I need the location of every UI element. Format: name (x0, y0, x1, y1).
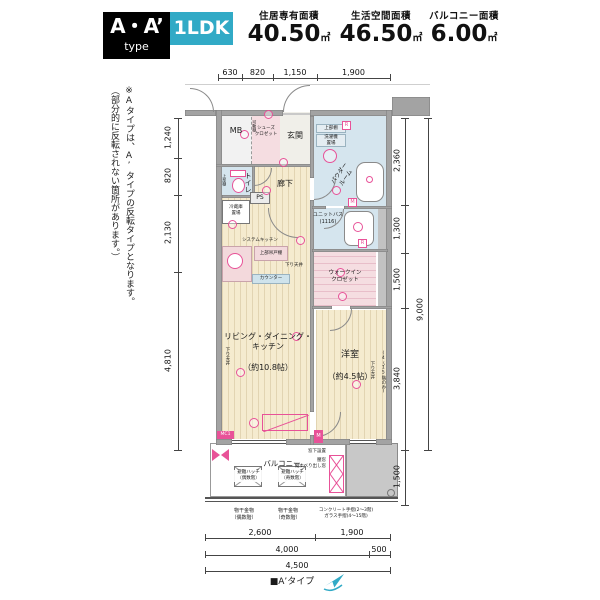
wall (312, 249, 388, 252)
dim-bottom1-1: 1,900 (322, 528, 382, 537)
casement-window (329, 455, 344, 493)
pipe-shaft (378, 208, 386, 306)
under-window-note: 窓下設置 (296, 449, 326, 455)
marker-r: R (358, 239, 367, 248)
dim-top-1: 820 (243, 68, 272, 77)
corridor-door-arc (190, 88, 214, 112)
dim-tick (390, 534, 391, 541)
marker-mc1: MC1 (217, 431, 234, 439)
wall (216, 164, 312, 167)
balcony-railing (205, 497, 398, 502)
dim-line-left (178, 118, 179, 450)
dim-tick (174, 158, 182, 159)
dim-tick (205, 551, 206, 558)
dim-tick (174, 118, 182, 119)
note-line2: （部分的に反転されない箇所があります。） (106, 86, 121, 366)
dim-bottom2-0: 4,000 (257, 545, 317, 554)
dim-line-bottom1 (205, 538, 390, 539)
stat-unit: ㎡ (320, 33, 330, 44)
bedroom-window (350, 440, 376, 444)
dim-tick (424, 118, 432, 119)
type-sub: type (103, 40, 170, 53)
dim-bottom-total: 4,500 (267, 561, 327, 570)
hatch-even-label: 避難ハッチ （偶数階） (233, 470, 264, 482)
dim-line-top (218, 78, 390, 79)
bath-drain-icon (353, 222, 363, 232)
pole-even-label: 物干金物 （偶数階） (224, 508, 264, 521)
entrance-threshold (283, 113, 310, 115)
pole-odd-label: 物干金物 （奇数階） (268, 508, 308, 521)
stat-living-area: 生活空間面積 46.50㎡ (338, 8, 424, 46)
dim-top-3: 1,900 (333, 68, 374, 77)
unit-bath-label: ユニットバス (1116) (312, 212, 344, 225)
stat-label: バルコニー面積 (424, 8, 504, 22)
mb-label: MB (222, 126, 250, 136)
wic-label: ウォークイン クロゼット (318, 270, 372, 284)
wall (376, 439, 392, 445)
type-box: A・A’ type (103, 12, 170, 59)
stat-value: 46.50 (340, 21, 413, 47)
stat-unit: ㎡ (487, 33, 497, 44)
floors-only-note: (4〜15階のみ) (380, 348, 386, 396)
dim-top-0: 630 (216, 68, 244, 77)
entrance-door-arc (283, 85, 310, 112)
furniture-diagonal (263, 415, 309, 432)
hatch-odd-label: 避難ハッチ （奇数階） (277, 470, 308, 482)
wall (310, 110, 392, 116)
dim-left-0: 1,240 (164, 118, 173, 158)
window-x-icon (330, 456, 343, 492)
dim-tick (390, 567, 391, 574)
dim-left-1: 820 (164, 156, 173, 196)
dim-bottom2-1: 500 (361, 545, 397, 554)
legend-label: ■A’タイプ (262, 577, 322, 589)
fridge-label: 冷蔵庫 置場 (222, 205, 250, 217)
handrail-note: コンクリート手摺(2〜3階) ガラス手摺(4〜15階) (310, 508, 382, 520)
dim-tick (401, 308, 409, 309)
type-main: A・A’ (103, 12, 170, 40)
washer-label: 洗濯機 置場 (316, 135, 346, 146)
dim-tick (401, 253, 409, 254)
stat-label: 住居専有面積 (246, 8, 332, 22)
washer-icon (323, 149, 337, 163)
wall (216, 439, 232, 445)
dim-tick (174, 195, 182, 196)
dim-tick (401, 450, 409, 451)
ldk-furniture (262, 414, 308, 431)
dim-tick (273, 74, 274, 81)
stat-value: 6.00 (431, 21, 488, 47)
plan-type-box: 1LDK (170, 12, 233, 45)
faucet-icon (366, 176, 373, 183)
dim-line-bottom3 (205, 571, 390, 572)
kitchen-counter: カウンター (252, 274, 290, 284)
balcony-label: バルコニー (250, 459, 314, 469)
wall (310, 116, 314, 178)
hallway-label: 廊下 (270, 179, 300, 189)
dim-tick (401, 505, 409, 506)
fixture-marker-icon (279, 158, 288, 167)
ldk-size-label: （約10.8帖） (238, 363, 298, 373)
stat-value: 40.50 (248, 21, 321, 47)
wall (350, 306, 392, 309)
stat-balcony-area: バルコニー面積 6.00㎡ (424, 8, 504, 46)
fixture-marker-icon (338, 292, 347, 301)
marker-m: M (348, 198, 357, 207)
bedroom-label: 洋室 (328, 350, 372, 362)
dim-tick (205, 567, 206, 574)
wall (312, 306, 332, 309)
dim-tick (401, 118, 409, 119)
wall (386, 110, 392, 443)
dim-tick (317, 74, 318, 81)
fixture-marker-icon (264, 110, 273, 119)
dim-left-3: 4,810 (164, 341, 173, 381)
hanging-cupboard: 上部吊戸棚 (254, 246, 288, 261)
floorplan-page: A・A’ type 1LDK 住居専有面積 40.50㎡ 生活空間面積 46.5… (0, 0, 600, 600)
movable-shelf-label: 可動棚 (252, 115, 257, 137)
dim-right-0: 2,360 (393, 141, 402, 181)
dim-tick (205, 534, 206, 541)
toilet-shelf-label: 上部棚 (222, 169, 227, 191)
dim-line-right-outer (428, 118, 429, 450)
dim-tick (174, 272, 182, 273)
marker-m-bedroom: M (314, 430, 323, 443)
dim-tick (315, 534, 316, 541)
mirror-type-note: ※Aタイプは、A’タイプの反転タイプとなります。 （部分的に反転されない箇所があ… (106, 86, 136, 366)
ldk-window (232, 440, 286, 444)
dim-bottom1-0: 2,600 (230, 528, 290, 537)
dim-right-1: 1,300 (393, 209, 402, 249)
balcony-bowtie-icon (212, 449, 229, 461)
dim-tick (424, 450, 432, 451)
kitchen-sink-icon (227, 253, 243, 269)
dim-right-4: 1,500 (393, 457, 402, 497)
toilet-label: トイレ (243, 168, 252, 196)
dropped-ceiling-label: 下り天井 (369, 354, 375, 386)
entrance-label: 玄関 (280, 131, 310, 141)
north-arrow-icon (322, 573, 346, 593)
dim-tick (390, 74, 391, 81)
floor-lamp-icon (249, 418, 259, 428)
stat-label: 生活空間面積 (338, 8, 424, 22)
dim-top-2: 1,150 (275, 68, 315, 77)
fixture-marker-icon (228, 220, 237, 229)
dim-line-bottom2 (205, 555, 390, 556)
dim-left-2: 2,130 (164, 213, 173, 253)
plan-type: 1LDK (170, 12, 233, 45)
stat-unit: ㎡ (412, 33, 422, 44)
note-line1: ※Aタイプは、A’タイプの反転タイプとなります。 (121, 86, 136, 366)
fixture-marker-icon (296, 236, 305, 245)
dim-right-total: 9,000 (416, 290, 425, 330)
ldk-label: リビング・ダイニング・ キッチン (222, 332, 314, 353)
wall (392, 97, 430, 116)
dim-right-3: 3,840 (393, 359, 402, 399)
dim-line-right-inner (405, 118, 406, 505)
dim-tick (401, 205, 409, 206)
upper-shelf-label: 上部棚 (316, 125, 346, 132)
dropped-ceiling-label: 下り天井 (224, 340, 230, 372)
dropped-ceiling-label: 下り天井 (280, 263, 308, 269)
dim-tick (174, 450, 182, 451)
system-kitchen-label: システムキッチン (228, 238, 292, 244)
stat-exclusive-area: 住居専有面積 40.50㎡ (246, 8, 332, 46)
dim-right-2: 1,500 (393, 260, 402, 300)
